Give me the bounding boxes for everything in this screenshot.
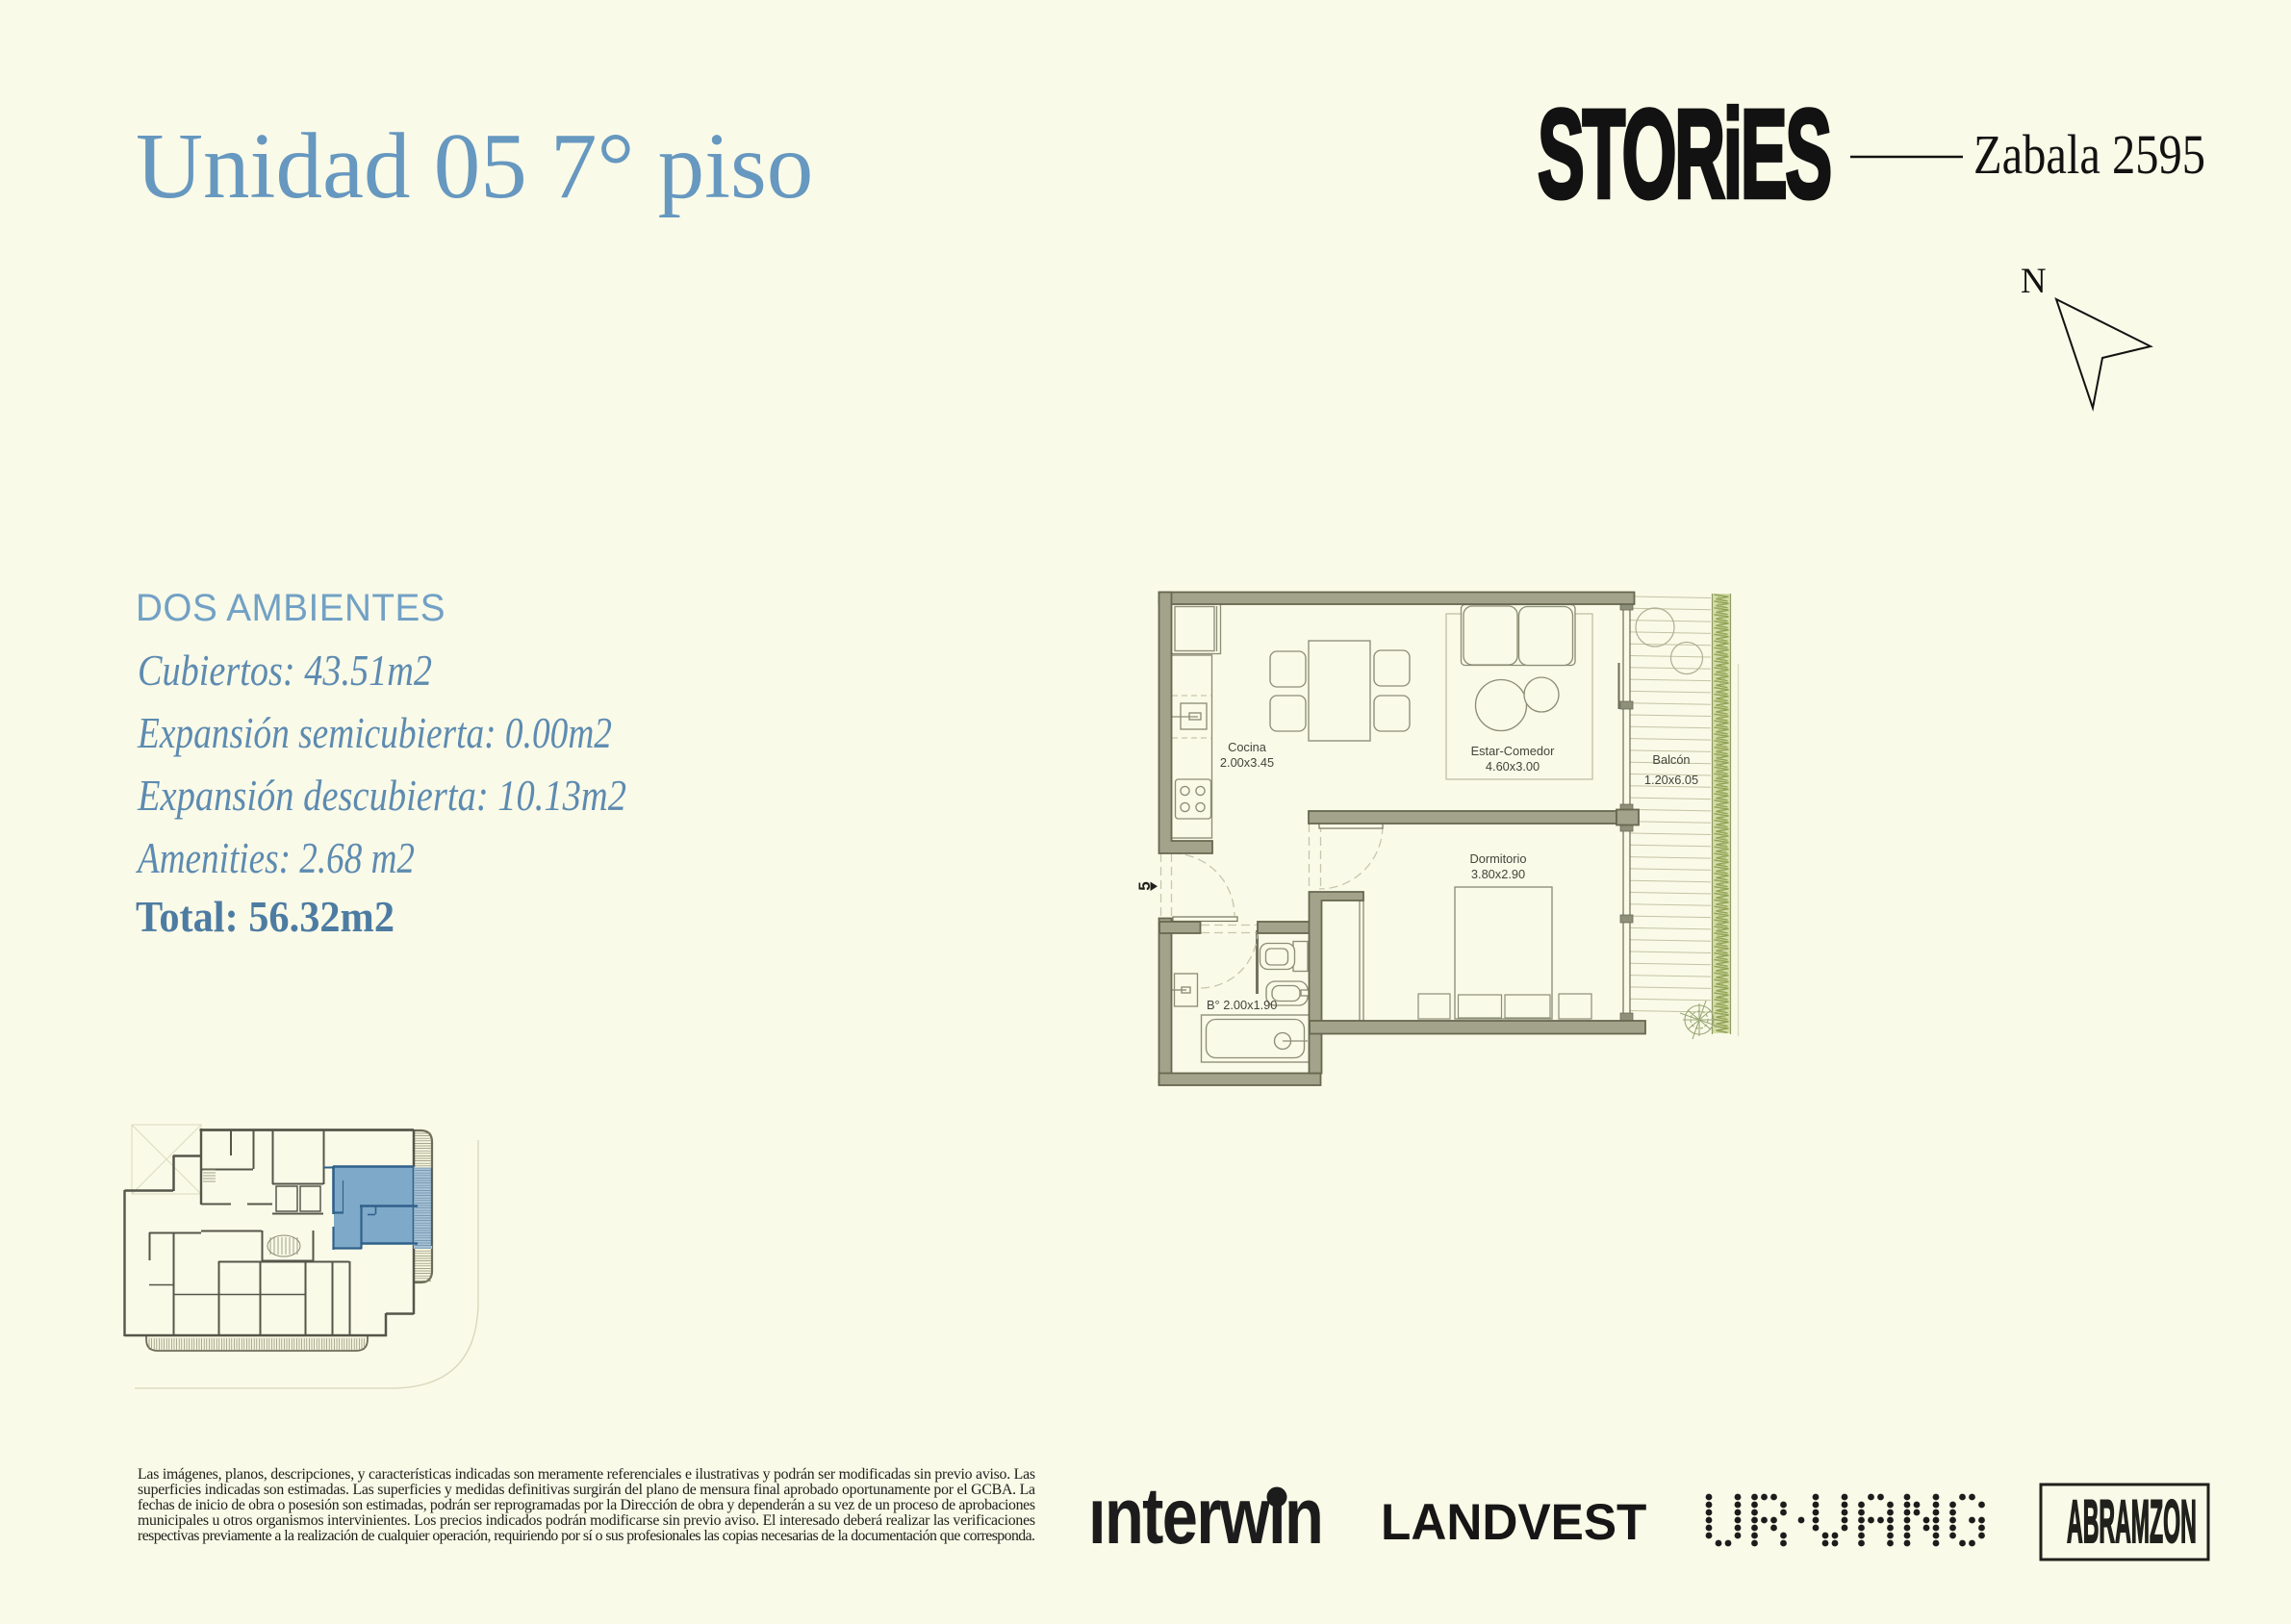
svg-text:Expansión descubierta: 10.13m2: Expansión descubierta: 10.13m2 [137, 772, 626, 820]
svg-text:superficies indicadas son esti: superficies indicadas son estimadas. Las… [138, 1482, 1035, 1498]
svg-text:Expansión semicubierta: 0.00m2: Expansión semicubierta: 0.00m2 [137, 709, 612, 757]
svg-text:respectivas previamente a la r: respectivas previamente a la realización… [138, 1528, 1035, 1544]
svg-text:Estar-Comedor: Estar-Comedor [1471, 744, 1555, 758]
svg-text:ınterwın: ınterwın [1088, 1471, 1322, 1561]
svg-text:fechas de inicio de obra o pos: fechas de inicio de obra o posesión son … [138, 1497, 1035, 1513]
svg-text:Total: 56.32m2: Total: 56.32m2 [136, 892, 395, 941]
svg-text:Zabala 2595: Zabala 2595 [1973, 123, 2205, 186]
svg-text:Cubiertos: 43.51m2: Cubiertos: 43.51m2 [138, 647, 432, 695]
svg-text:Cocina: Cocina [1228, 740, 1267, 754]
svg-text:3.80x2.90: 3.80x2.90 [1471, 867, 1525, 881]
svg-text:N: N [2021, 262, 2047, 301]
svg-text:Balcón: Balcón [1652, 752, 1690, 767]
svg-text:LANDVEST: LANDVEST [1381, 1494, 1647, 1551]
svg-text:Unidad 05 7° piso: Unidad 05 7° piso [136, 114, 813, 217]
svg-text:DOS AMBIENTES: DOS AMBIENTES [136, 587, 445, 629]
svg-text:B° 2.00x1.90: B° 2.00x1.90 [1207, 998, 1277, 1012]
svg-text:ABRAMZON: ABRAMZON [2067, 1488, 2197, 1556]
svg-text:Las imágenes, planos, descripc: Las imágenes, planos, descripciones, y c… [138, 1466, 1035, 1483]
svg-text:4.60x3.00: 4.60x3.00 [1486, 759, 1540, 774]
svg-text:Dormitorio: Dormitorio [1469, 851, 1526, 866]
svg-text:municipales u otros organismos: municipales u otros organismos intervini… [138, 1512, 1035, 1529]
svg-text:STORiES: STORiES [1538, 85, 1830, 225]
svg-text:2.00x3.45: 2.00x3.45 [1220, 755, 1274, 770]
svg-text:1.20x6.05: 1.20x6.05 [1644, 773, 1698, 787]
svg-text:Amenities: 2.68 m2: Amenities: 2.68 m2 [136, 834, 415, 882]
